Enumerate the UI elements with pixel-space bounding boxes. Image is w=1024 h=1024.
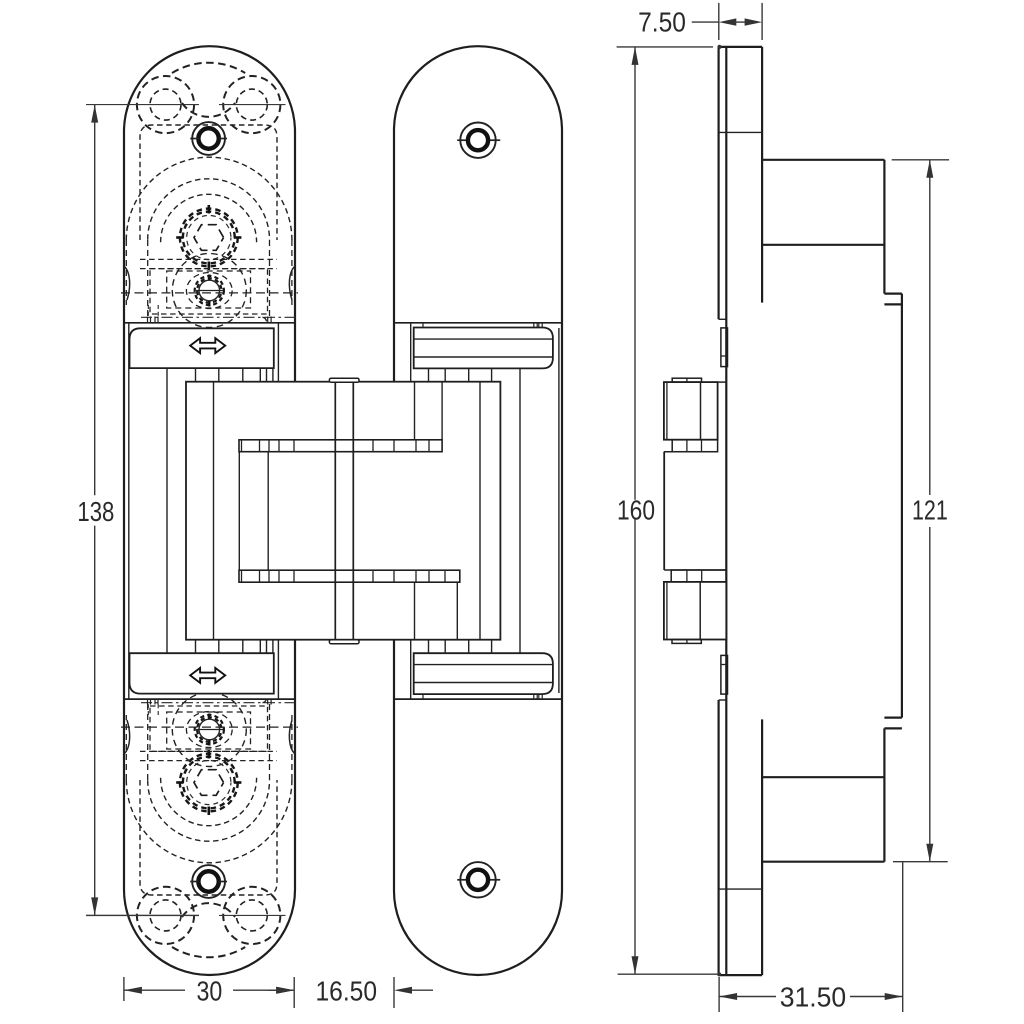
svg-text:7.50: 7.50 [638, 7, 686, 38]
svg-text:16.50: 16.50 [316, 975, 378, 1006]
svg-text:30: 30 [197, 975, 223, 1006]
svg-text:138: 138 [77, 496, 114, 527]
svg-text:31.50: 31.50 [780, 982, 846, 1013]
svg-text:160: 160 [617, 495, 655, 526]
svg-text:121: 121 [912, 495, 948, 526]
